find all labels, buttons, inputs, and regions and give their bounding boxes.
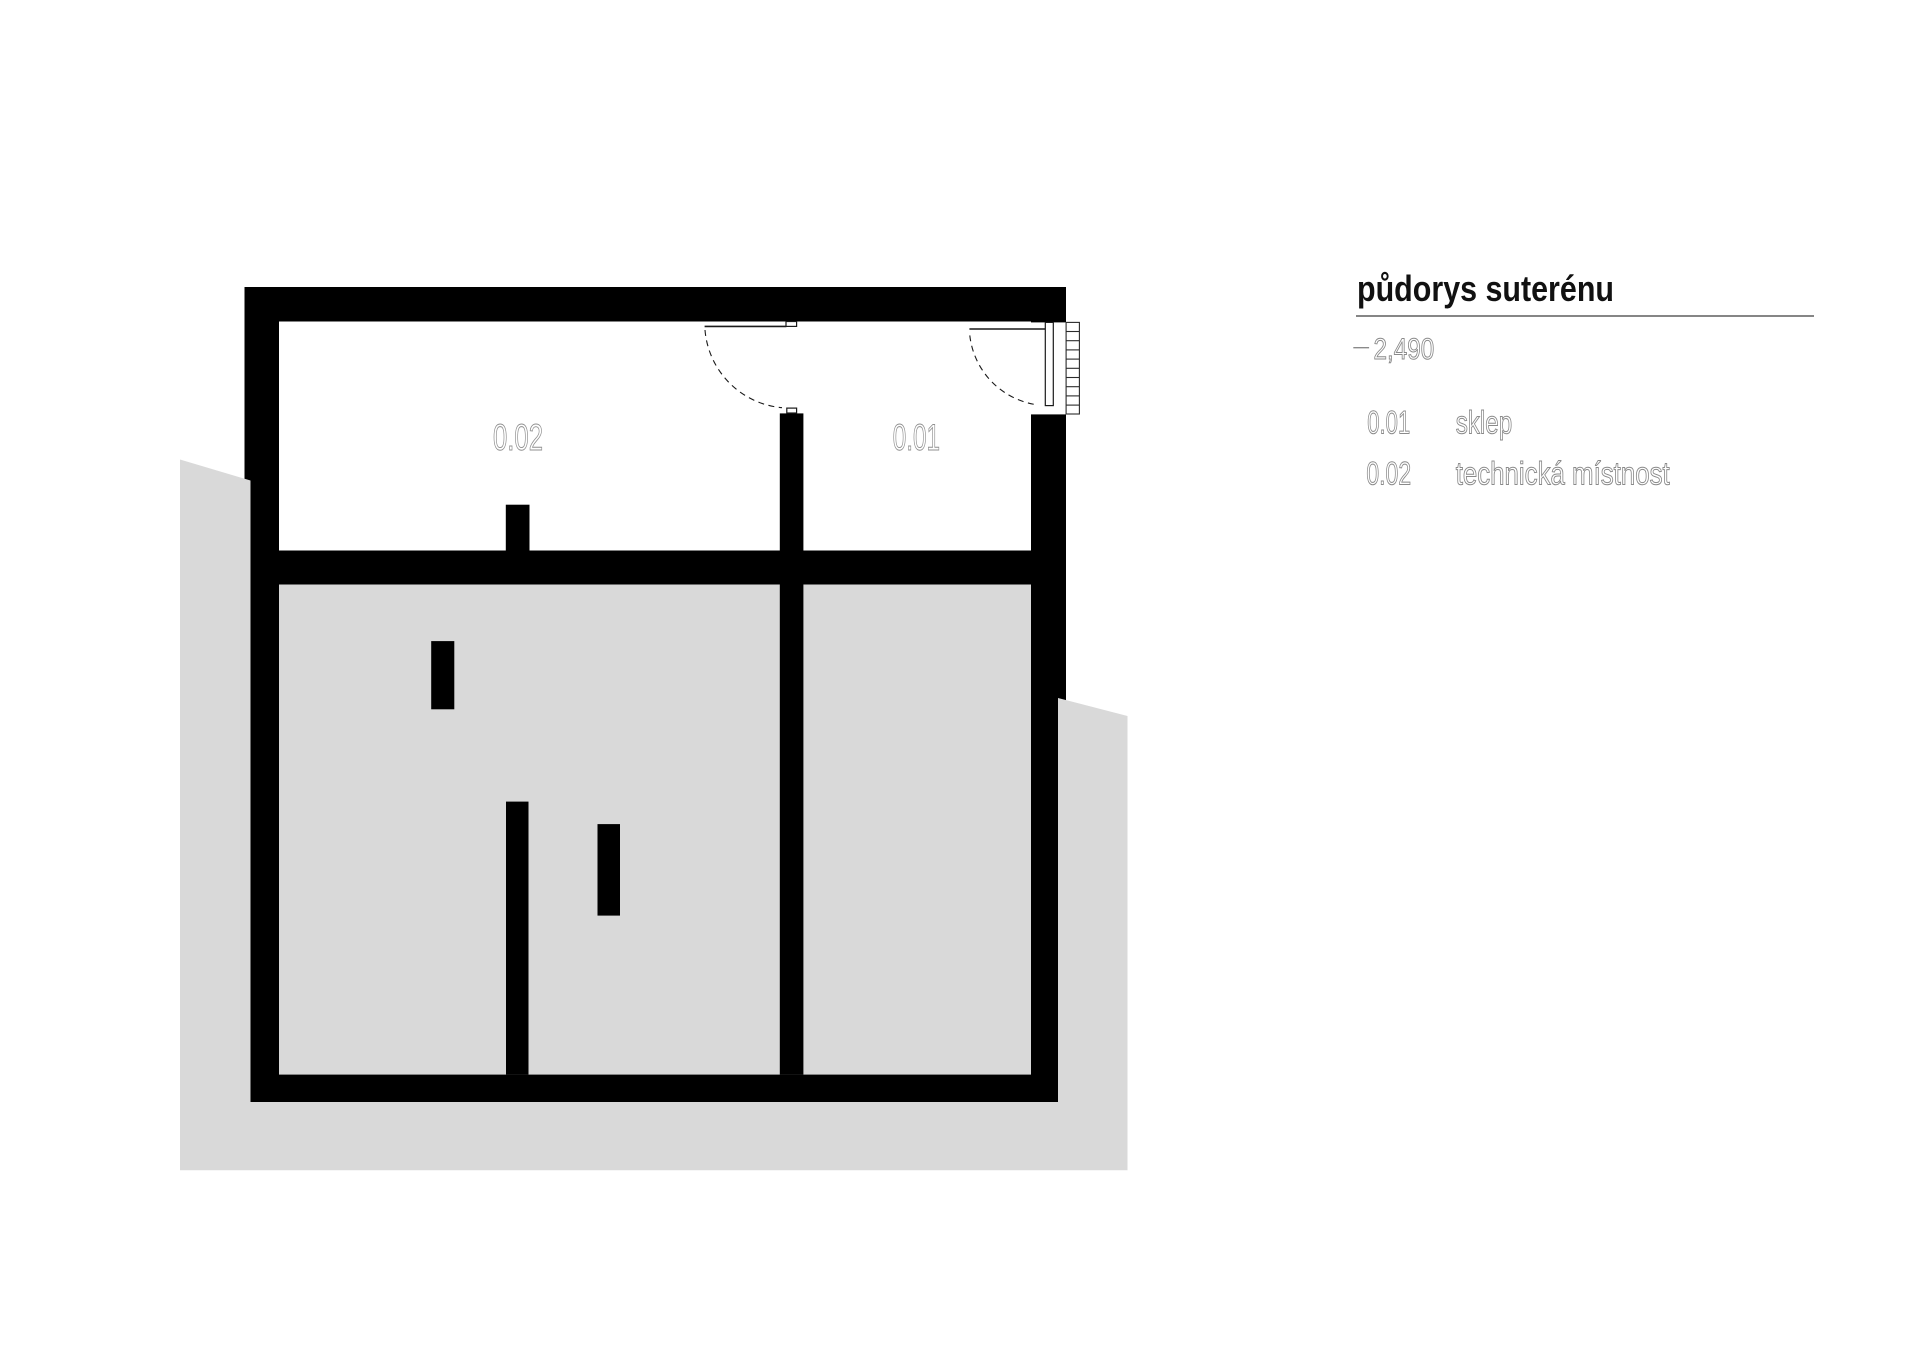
svg-text:sklep: sklep xyxy=(1456,405,1513,441)
svg-text:půdorys suterénu: půdorys suterénu xyxy=(1357,268,1614,309)
svg-text:0.01: 0.01 xyxy=(1367,405,1410,441)
svg-text:0.02: 0.02 xyxy=(493,417,543,458)
svg-text:2,490: 2,490 xyxy=(1374,333,1435,366)
svg-text:technická místnost: technická místnost xyxy=(1456,455,1670,491)
svg-text:0.02: 0.02 xyxy=(1366,455,1411,491)
svg-text:0.01: 0.01 xyxy=(893,417,940,458)
